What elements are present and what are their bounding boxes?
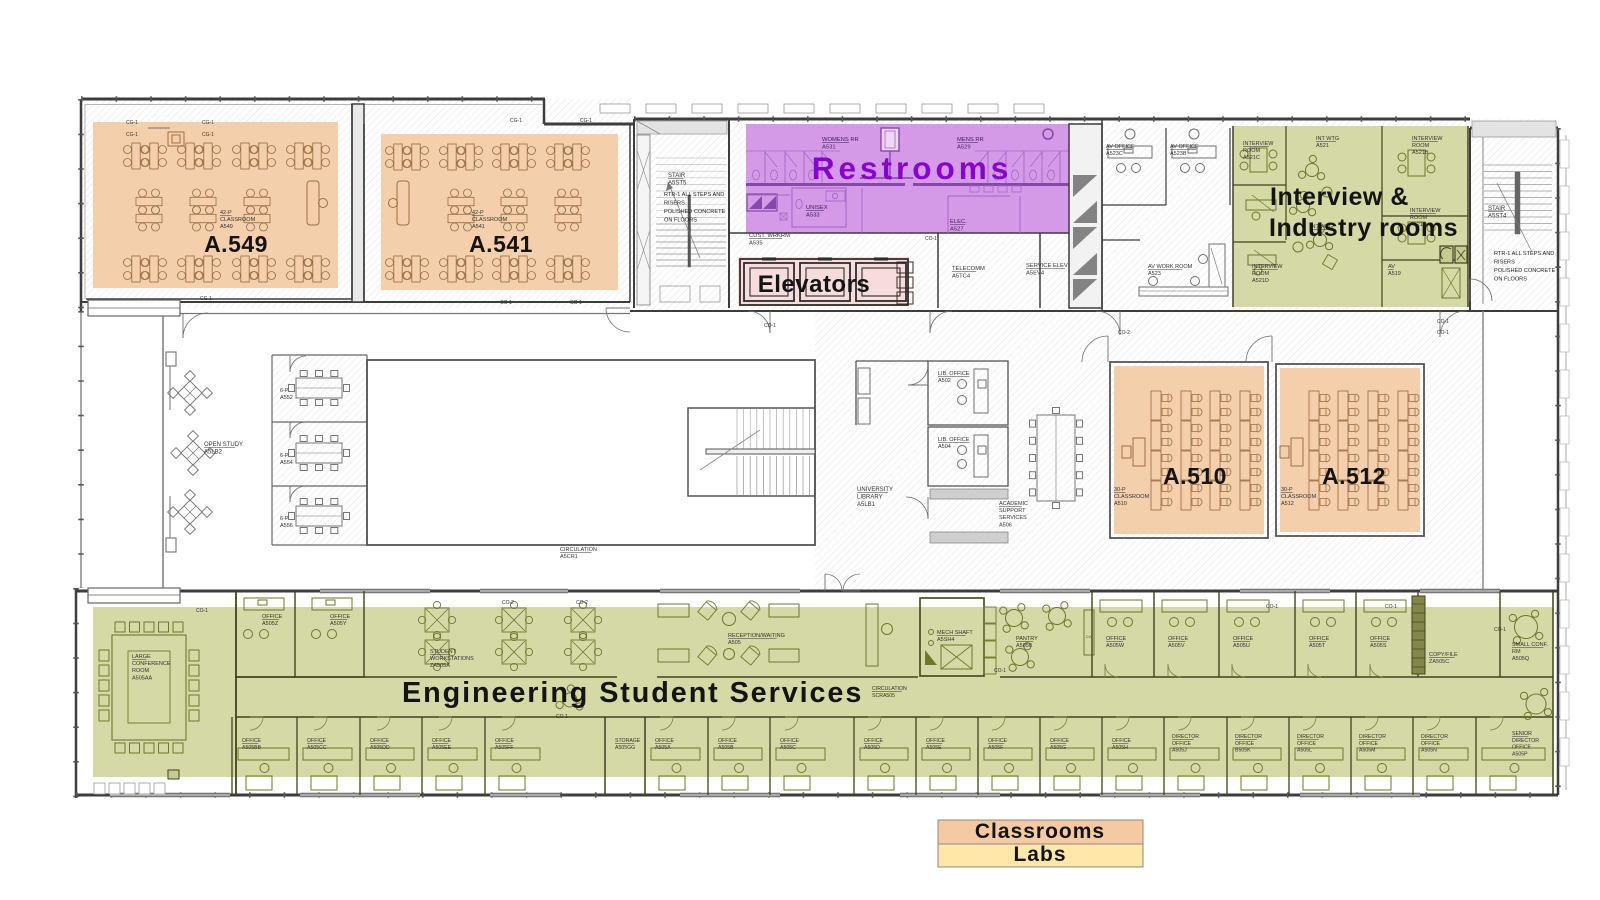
svg-text:AV WORK ROOM: AV WORK ROOM xyxy=(1148,264,1193,270)
svg-text:6-P: 6-P xyxy=(280,453,289,459)
svg-text:Restrooms: Restrooms xyxy=(812,150,1013,186)
svg-text:UNISEX: UNISEX xyxy=(806,205,828,211)
svg-text:A554: A554 xyxy=(280,460,293,466)
svg-text:CG-1: CG-1 xyxy=(200,296,212,302)
svg-text:Interview &: Interview & xyxy=(1270,183,1409,211)
svg-text:CO-1: CO-1 xyxy=(764,323,776,329)
svg-text:A5ST4: A5ST4 xyxy=(1488,214,1507,220)
svg-text:INTERVIEW: INTERVIEW xyxy=(1252,264,1283,270)
svg-text:SENIOR: SENIOR xyxy=(1512,731,1532,737)
svg-text:POLISHED CONCRETE: POLISHED CONCRETE xyxy=(1494,268,1555,274)
svg-text:STUDENT: STUDENT xyxy=(430,649,457,655)
svg-text:MENS RR: MENS RR xyxy=(957,137,984,143)
svg-text:OFFICE: OFFICE xyxy=(1370,636,1390,642)
svg-text:OFFICE: OFFICE xyxy=(242,738,262,744)
svg-text:6-P: 6-P xyxy=(280,388,289,394)
svg-text:A549: A549 xyxy=(220,224,233,230)
svg-text:SERVICES: SERVICES xyxy=(999,515,1027,521)
svg-text:TELECOMM: TELECOMM xyxy=(952,266,985,272)
svg-text:A519: A519 xyxy=(1388,271,1401,277)
svg-text:OFFICE: OFFICE xyxy=(1172,741,1192,747)
svg-text:A505GG: A505GG xyxy=(615,745,635,751)
svg-text:DIRECTOR: DIRECTOR xyxy=(1421,734,1448,740)
svg-text:CG-1: CG-1 xyxy=(202,120,214,126)
svg-text:A527: A527 xyxy=(950,226,964,232)
svg-text:SMALL CONF.: SMALL CONF. xyxy=(1512,642,1548,648)
svg-text:ROOM: ROOM xyxy=(1412,143,1430,149)
svg-text:A5LB1: A5LB1 xyxy=(857,502,876,508)
svg-text:STAIR: STAIR xyxy=(668,173,686,179)
svg-text:CLASSROOM: CLASSROOM xyxy=(1281,494,1317,500)
svg-text:A5LB2: A5LB2 xyxy=(204,450,223,456)
svg-text:A505G: A505G xyxy=(1050,745,1066,751)
svg-text:CG-1: CG-1 xyxy=(510,118,522,124)
svg-text:OFFICE: OFFICE xyxy=(718,738,738,744)
svg-text:OFFICE: OFFICE xyxy=(262,614,282,620)
svg-text:Engineering Student Services: Engineering Student Services xyxy=(402,677,863,709)
svg-text:CLASSROOM: CLASSROOM xyxy=(472,217,508,223)
svg-text:A505S: A505S xyxy=(1370,643,1387,649)
svg-text:ON FLOORS: ON FLOORS xyxy=(664,218,697,224)
svg-text:A523B: A523B xyxy=(1170,151,1187,157)
svg-text:6-P: 6-P xyxy=(280,516,289,522)
svg-text:30-P: 30-P xyxy=(1281,487,1293,493)
svg-text:CO-1: CO-1 xyxy=(556,714,568,720)
svg-text:OFFICE: OFFICE xyxy=(1168,636,1188,642)
svg-text:RECEPTION/WAITING: RECEPTION/WAITING xyxy=(728,633,785,639)
svg-text:OFFICE: OFFICE xyxy=(1112,738,1132,744)
svg-text:OFFICE: OFFICE xyxy=(330,614,350,620)
svg-text:A505Q: A505Q xyxy=(1512,656,1530,662)
svg-text:Classrooms: Classrooms xyxy=(975,820,1105,843)
svg-text:STORAGE: STORAGE xyxy=(615,738,641,744)
svg-text:CLASSROOM: CLASSROOM xyxy=(220,217,256,223)
svg-text:LARGE: LARGE xyxy=(132,654,151,660)
svg-text:Industry rooms: Industry rooms xyxy=(1269,214,1458,242)
svg-text:INTERVIEW: INTERVIEW xyxy=(1243,141,1274,147)
svg-text:B505K: B505K xyxy=(1235,748,1251,754)
svg-text:ZA505A: ZA505A xyxy=(430,663,450,669)
svg-text:A533: A533 xyxy=(806,212,820,218)
svg-text:INT WTG: INT WTG xyxy=(1316,136,1339,142)
svg-text:A505CC: A505CC xyxy=(307,745,327,751)
svg-text:COPY/FILE: COPY/FILE xyxy=(1429,652,1458,658)
svg-text:A505BB: A505BB xyxy=(242,745,262,751)
svg-text:AV OFFICE: AV OFFICE xyxy=(1170,144,1199,150)
svg-text:A.512: A.512 xyxy=(1322,463,1386,489)
svg-text:A505EE: A505EE xyxy=(432,745,452,751)
svg-text:LIB. OFFICE: LIB. OFFICE xyxy=(938,437,970,443)
svg-text:A.541: A.541 xyxy=(469,231,533,257)
svg-text:A505E: A505E xyxy=(926,745,942,751)
svg-text:A521: A521 xyxy=(1316,143,1329,149)
svg-text:A5050: A5050 xyxy=(1016,643,1032,649)
svg-text:A.549: A.549 xyxy=(204,231,268,257)
svg-text:A505AA: A505AA xyxy=(132,675,153,681)
svg-text:ROOM: ROOM xyxy=(1243,148,1261,154)
svg-text:CG-1: CG-1 xyxy=(570,300,582,306)
svg-text:CO-1: CO-1 xyxy=(1437,319,1449,325)
svg-text:UNIVERSITY: UNIVERSITY xyxy=(857,487,893,493)
svg-text:A505F: A505F xyxy=(988,745,1003,751)
svg-text:A505Y: A505Y xyxy=(330,621,347,627)
svg-text:A5EV4: A5EV4 xyxy=(1026,270,1045,276)
svg-text:ELEC.: ELEC. xyxy=(950,219,967,225)
svg-text:ACADEMIC: ACADEMIC xyxy=(999,501,1028,507)
svg-text:A505P: A505P xyxy=(1512,751,1528,757)
svg-text:OFFICE: OFFICE xyxy=(1235,741,1255,747)
svg-text:A505H: A505H xyxy=(1112,745,1128,751)
svg-text:CG-1: CG-1 xyxy=(126,132,138,138)
svg-text:CO-1: CO-1 xyxy=(1494,627,1506,633)
svg-text:CUST. WRKRM: CUST. WRKRM xyxy=(749,233,790,239)
svg-text:30-P: 30-P xyxy=(1114,487,1126,493)
svg-text:WOMENS RR: WOMENS RR xyxy=(822,137,859,143)
svg-text:CONFERENCE: CONFERENCE xyxy=(132,661,171,667)
svg-text:CG-1: CG-1 xyxy=(202,132,214,138)
svg-text:A505J: A505J xyxy=(1172,748,1187,754)
svg-text:OFFICE: OFFICE xyxy=(1421,741,1441,747)
svg-text:WORKSTATIONS: WORKSTATIONS xyxy=(430,656,474,662)
svg-text:A505M: A505M xyxy=(1359,748,1375,754)
svg-text:RM: RM xyxy=(1512,649,1521,655)
svg-text:A505Z: A505Z xyxy=(262,621,279,627)
svg-text:OPEN STUDY: OPEN STUDY xyxy=(204,442,243,448)
svg-text:STAIR: STAIR xyxy=(1488,206,1506,212)
svg-text:SERVICE ELEV.: SERVICE ELEV. xyxy=(1026,263,1069,269)
svg-text:OFFICE: OFFICE xyxy=(988,738,1008,744)
svg-text:A505FF: A505FF xyxy=(495,745,513,751)
svg-text:OFFICE: OFFICE xyxy=(655,738,675,744)
svg-text:RISERS: RISERS xyxy=(1494,260,1515,266)
svg-text:OFFICE: OFFICE xyxy=(926,738,946,744)
svg-text:CO-2: CO-2 xyxy=(502,600,514,606)
svg-text:A.510: A.510 xyxy=(1163,463,1227,489)
svg-text:ZA505C: ZA505C xyxy=(1429,659,1449,665)
svg-text:OFFICE: OFFICE xyxy=(1309,636,1329,642)
svg-text:A505B: A505B xyxy=(718,745,734,751)
svg-text:CO-2: CO-2 xyxy=(1118,330,1130,336)
svg-text:A505: A505 xyxy=(728,640,741,646)
svg-text:SUPPORT: SUPPORT xyxy=(999,508,1026,514)
svg-text:DIRECTOR: DIRECTOR xyxy=(1235,734,1262,740)
svg-text:OFFICE: OFFICE xyxy=(864,738,884,744)
svg-text:A5ST5: A5ST5 xyxy=(668,181,687,187)
svg-text:A505A: A505A xyxy=(655,745,671,751)
svg-text:RISERS: RISERS xyxy=(664,201,685,207)
svg-text:A505U: A505U xyxy=(1233,643,1250,649)
svg-text:OFFICE: OFFICE xyxy=(1106,636,1126,642)
svg-text:A512: A512 xyxy=(1281,501,1294,507)
svg-text:A502: A502 xyxy=(938,378,951,384)
svg-text:ROOM: ROOM xyxy=(1252,271,1270,277)
svg-text:DIRECTOR: DIRECTOR xyxy=(1512,738,1539,744)
svg-text:A5CR1: A5CR1 xyxy=(560,554,578,560)
svg-text:POLISHED CONCRETE: POLISHED CONCRETE xyxy=(664,209,725,215)
svg-text:CO-1: CO-1 xyxy=(925,236,937,242)
svg-text:A556: A556 xyxy=(280,523,293,529)
svg-text:CO-1: CO-1 xyxy=(1385,604,1397,610)
svg-text:INTERVIEW: INTERVIEW xyxy=(1412,136,1443,142)
svg-text:A505D: A505D xyxy=(864,745,880,751)
svg-text:A505T: A505T xyxy=(1309,643,1326,649)
svg-text:CLASSROOM: CLASSROOM xyxy=(1114,494,1150,500)
svg-text:CG-1: CG-1 xyxy=(126,120,138,126)
svg-text:OFFICE: OFFICE xyxy=(1233,636,1253,642)
svg-text:DIRECTOR: DIRECTOR xyxy=(1297,734,1324,740)
svg-text:OFFICE: OFFICE xyxy=(1359,741,1379,747)
svg-text:A505C: A505C xyxy=(780,745,796,751)
svg-text:Elevators: Elevators xyxy=(758,271,871,298)
svg-text:CG-1: CG-1 xyxy=(580,118,592,124)
svg-text:CIRCULATION: CIRCULATION xyxy=(560,547,597,553)
svg-text:OFFICE: OFFICE xyxy=(1297,741,1317,747)
svg-text:RTR-1 ALL STEPS AND: RTR-1 ALL STEPS AND xyxy=(664,192,724,198)
svg-text:CO-1: CO-1 xyxy=(1266,604,1278,610)
svg-text:LIB. OFFICE: LIB. OFFICE xyxy=(938,371,970,377)
svg-text:CO-2: CO-2 xyxy=(576,600,588,606)
svg-text:AV OFFICE: AV OFFICE xyxy=(1106,144,1135,150)
svg-text:A535: A535 xyxy=(749,240,763,246)
svg-text:A510: A510 xyxy=(1114,501,1127,507)
svg-text:LIBRARY: LIBRARY xyxy=(857,495,883,501)
svg-text:CO-1: CO-1 xyxy=(196,608,208,614)
svg-text:CO-1: CO-1 xyxy=(994,668,1006,674)
svg-text:ROOM: ROOM xyxy=(132,668,150,674)
svg-text:CO-1: CO-1 xyxy=(1437,330,1449,336)
svg-text:OFFICE: OFFICE xyxy=(307,738,327,744)
svg-text:A523: A523 xyxy=(1148,271,1161,277)
svg-text:DIRECTOR: DIRECTOR xyxy=(1359,734,1386,740)
svg-text:MECH SHAFT: MECH SHAFT xyxy=(937,630,973,636)
svg-text:A523C: A523C xyxy=(1106,151,1123,157)
svg-text:A505W: A505W xyxy=(1106,643,1125,649)
svg-text:A506: A506 xyxy=(999,522,1012,528)
svg-text:OFFICE: OFFICE xyxy=(432,738,452,744)
svg-text:A521C: A521C xyxy=(1243,155,1260,161)
svg-text:RTR-1 ALL STEPS AND: RTR-1 ALL STEPS AND xyxy=(1494,251,1554,257)
svg-text:A505L: A505L xyxy=(1297,748,1312,754)
svg-text:Labs: Labs xyxy=(1013,843,1066,866)
svg-text:ON FLOORS: ON FLOORS xyxy=(1494,277,1527,283)
svg-text:A552: A552 xyxy=(280,395,293,401)
svg-text:OFFICE: OFFICE xyxy=(780,738,800,744)
svg-text:42-P: 42-P xyxy=(472,210,484,216)
svg-text:A5TC4: A5TC4 xyxy=(952,273,971,279)
svg-text:A5SH4: A5SH4 xyxy=(937,637,954,643)
svg-text:A504: A504 xyxy=(938,444,951,450)
svg-text:OFFICE: OFFICE xyxy=(1050,738,1070,744)
svg-text:A521B: A521B xyxy=(1412,150,1429,156)
svg-text:CG-1: CG-1 xyxy=(500,300,512,306)
svg-text:PANTRY: PANTRY xyxy=(1016,636,1038,642)
svg-text:CIRCULATION: CIRCULATION xyxy=(872,686,907,692)
svg-text:A505V: A505V xyxy=(1168,643,1185,649)
svg-text:OFFICE: OFFICE xyxy=(495,738,515,744)
svg-text:SCRA505: SCRA505 xyxy=(872,693,895,699)
svg-text:A505N: A505N xyxy=(1421,748,1437,754)
svg-text:DIRECTOR: DIRECTOR xyxy=(1172,734,1199,740)
svg-text:AV: AV xyxy=(1388,264,1395,270)
svg-text:OFFICE: OFFICE xyxy=(370,738,390,744)
svg-text:42-P: 42-P xyxy=(220,210,232,216)
svg-text:A541: A541 xyxy=(472,224,485,230)
svg-text:A521D: A521D xyxy=(1252,278,1269,284)
svg-text:OFFICE: OFFICE xyxy=(1512,745,1532,751)
svg-text:A505DD: A505DD xyxy=(370,745,390,751)
